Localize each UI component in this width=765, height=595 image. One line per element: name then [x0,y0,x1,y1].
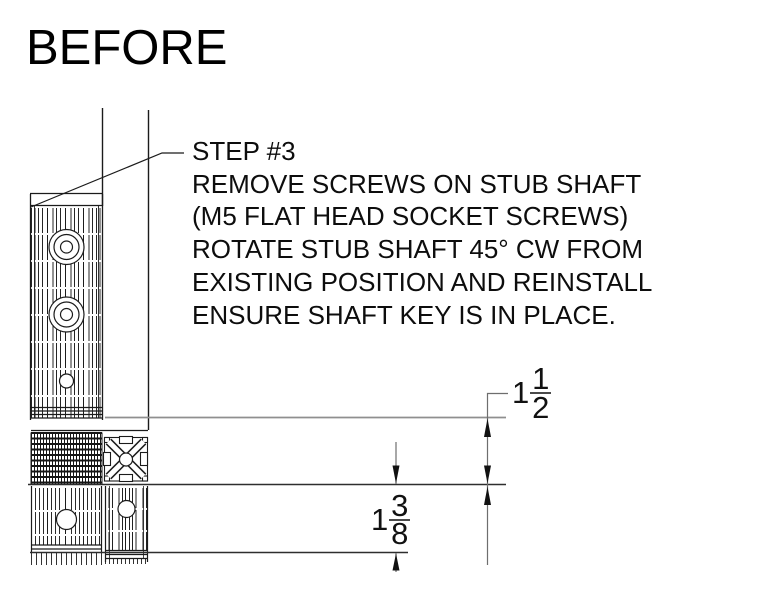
extension-lines [28,418,506,553]
fraction-denominator: 2 [532,395,549,420]
fraction-numerator: 3 [391,494,408,518]
dimension-lines [396,394,508,573]
t-slot-profile-section [104,437,148,482]
upper-extrusion-holes [49,230,84,389]
dimension-whole: 1 [512,375,529,411]
background-edges [103,108,149,430]
leader-line [31,153,184,207]
dimension-fraction: 1 2 [530,366,551,420]
fraction-numerator: 1 [532,366,549,391]
dimension-whole: 1 [371,502,388,538]
dimension-label-lower: 1 3 8 [371,494,410,546]
cad-drawing-view: BEFORE STEP #3 REMOVE SCREWS ON STUB SHA… [0,0,765,595]
dimension-label-upper: 1 1 2 [512,366,551,420]
fraction-denominator: 8 [391,522,408,546]
lower-members-holes [57,501,136,530]
lower-members-outline [32,486,148,562]
dimension-fraction: 3 8 [389,494,410,546]
